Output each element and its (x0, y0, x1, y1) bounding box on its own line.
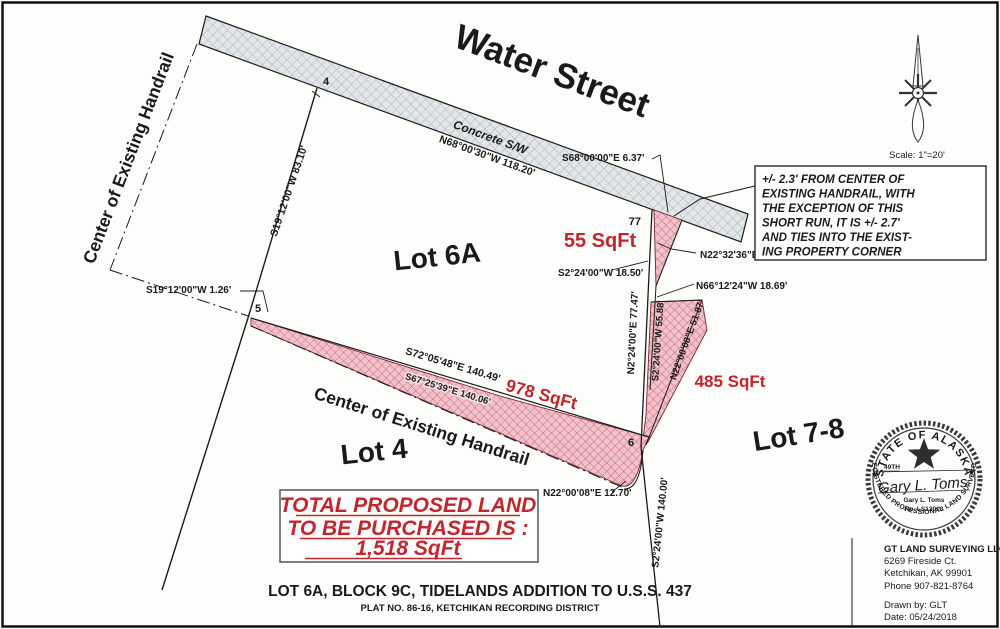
west-jog-bearing-label: S19°12'00"W 1.26' (146, 285, 231, 296)
surveyor-drawn-by: Drawn by: GLT (884, 600, 947, 611)
seal-name: Gary L. Toms (903, 497, 944, 504)
area-55sqft-label: 55 SqFt (564, 230, 637, 252)
area-485sqft-label: 485 SqFt (695, 372, 766, 391)
sidewalk-end-bearing-label: S68°00'00"E 6.37' (562, 153, 644, 164)
note-line-4: SHORT RUN, IT IS +/- 2.7' (762, 218, 901, 230)
seal-signature: Gary L. Toms (877, 474, 968, 497)
seal-star-left-icon: ★ (871, 470, 878, 479)
lot-4-label: Lot 4 (339, 433, 409, 471)
hook-bearing-label: N22°00'08"E 12.70' (543, 488, 632, 499)
parcel-978sqft-region (251, 318, 649, 486)
tie-sw-bearing-label: S2°24'00"W 18.50' (558, 268, 643, 279)
survey-plat-page: Water Street Concrete S/W N68°00'30"W 11… (0, 0, 1000, 629)
note-line-1: +/- 2.3' FROM CENTER OF (762, 174, 905, 186)
seal-49th-label: 49TH (884, 464, 900, 471)
seal-license: No. LS13013 (905, 506, 944, 513)
surveyor-company: GT LAND SURVEYING LLC (884, 544, 1000, 555)
total-line-1: TOTAL PROPOSED LAND (280, 494, 537, 517)
west-line-bearing-label: S19°12'00"W 83.10' (268, 144, 310, 238)
plat-drawing: Water Street Concrete S/W N68°00'30"W 11… (0, 0, 1000, 629)
plat-subtitle: PLAT NO. 86-16, KETCHIKAN RECORDING DIST… (361, 603, 600, 614)
scale-label: Scale: 1"=20' (889, 150, 945, 161)
surveyor-date: Date: 05/24/2018 (884, 612, 957, 623)
north-arrow-icon (899, 35, 937, 142)
lot-6a-label: Lot 6A (392, 237, 482, 277)
lot-7-8-label: Lot 7-8 (751, 412, 847, 457)
south-line-bearing-label: S2°24'00"W 140.00' (650, 477, 670, 568)
surveyor-address1: 6269 Fireside Ct. (884, 556, 956, 567)
leader-tie-nw (657, 284, 694, 297)
tie-nw-bearing-label: N66°12'24"W 18.69' (696, 281, 787, 292)
east-outer-bearing-label: N2°24'00"E 77.47' (626, 291, 641, 374)
point-4-label: 4 (323, 76, 330, 88)
leader-west-jog (240, 291, 268, 312)
total-line-3: 1,518 SqFt (355, 537, 461, 560)
street-name-label: Water Street (449, 17, 655, 125)
note-line-5: AND TIES INTO THE EXIST- (761, 232, 912, 244)
handrail-label-west: Center of Existing Handrail (79, 49, 178, 266)
point-6-label: 6 (628, 437, 634, 449)
note-line-6: ING PROPERTY CORNER (762, 247, 902, 259)
point-77-label: 77 (629, 216, 641, 228)
surveyor-phone: Phone 907-821-8764 (884, 581, 973, 592)
surveyor-address2: Ketchikan, AK 99901 (884, 568, 972, 579)
point-5-label: 5 (255, 303, 261, 315)
south-proposed-line (251, 318, 649, 437)
seal-star-right-icon: ★ (968, 468, 975, 477)
note-line-3: THE EXCEPTION OF THIS (762, 203, 904, 215)
note-line-2: EXISTING HANDRAIL, WITH (762, 189, 915, 201)
plat-title: LOT 6A, BLOCK 9C, TIDELANDS ADDITION TO … (268, 583, 692, 600)
